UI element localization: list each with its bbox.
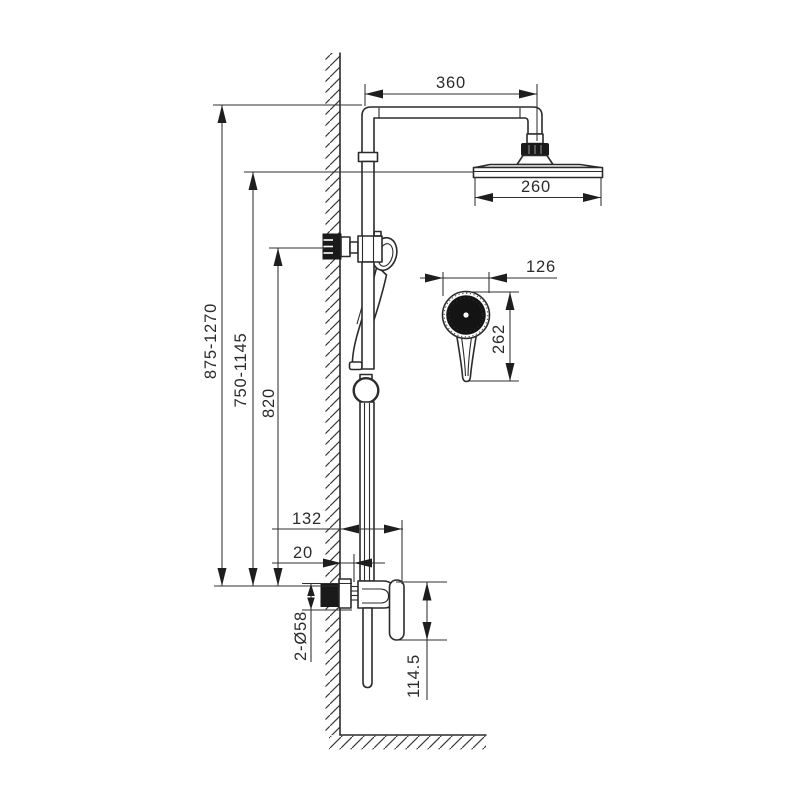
overhead-arm (362, 107, 553, 165)
wall (326, 53, 341, 735)
dim-label-valve-height: 114.5 (405, 654, 423, 698)
riser-coupling (359, 153, 378, 162)
drawing-canvas: 360 260 875-1270 750-1145 (0, 0, 800, 800)
dim-head-diameter: 260 (475, 178, 601, 206)
column-pipe-middle (362, 262, 374, 369)
detail-center-nozzle (463, 312, 468, 317)
dim-label-head-diameter: 260 (521, 178, 551, 196)
dim-label-hand-shower-length: 262 (490, 324, 508, 354)
hand-shower-detail (443, 292, 490, 382)
column-pipe-lower (360, 402, 374, 581)
dim-hand-shower-diameter: 126 (420, 258, 557, 296)
head-connector-base (517, 156, 553, 165)
valve-handle (390, 580, 405, 640)
dim-label-arm-reach: 360 (436, 74, 466, 92)
dim-label-wall-offset: 20 (293, 544, 313, 562)
floor-hatch (329, 736, 486, 750)
handset-handle-cap (350, 362, 363, 370)
rain-shower-head (474, 165, 603, 178)
arm-drop-coupling (527, 134, 543, 144)
valve-escutcheon (321, 584, 339, 607)
slider-ball-joint (354, 378, 379, 403)
dim-label-head-height: 750-1145 (232, 333, 250, 408)
column-pipe-upper (362, 162, 374, 237)
arm-pipe (362, 107, 542, 161)
dim-label-valve-projection: 132 (292, 510, 322, 528)
shower-technical-drawing: 360 260 875-1270 750-1145 (0, 0, 800, 800)
wall-hatch (326, 53, 341, 735)
slider-clamp-tab (374, 232, 381, 237)
dim-label-overall-height: 875-1270 (202, 303, 220, 379)
slider-clamp (358, 236, 382, 262)
dim-label-bracket-height: 820 (260, 388, 278, 418)
valve-body (358, 581, 393, 608)
dim-label-escutcheon: 2-Ø58 (292, 611, 310, 661)
bracket-stem (350, 242, 358, 253)
bracket-collar (341, 237, 350, 257)
detail-handle (457, 334, 477, 382)
dim-label-hand-shower-diameter: 126 (526, 258, 556, 276)
rain-head-rim (474, 168, 603, 178)
floor (329, 735, 486, 749)
valve-hose-outlet (363, 608, 372, 688)
